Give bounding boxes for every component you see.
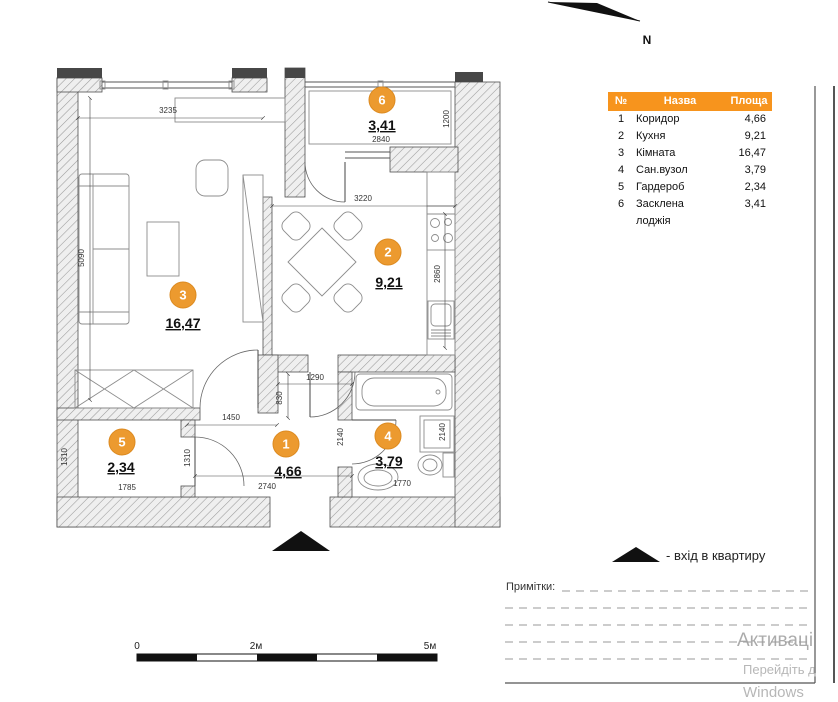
table-row: 3 Кімната 16,47 (608, 145, 772, 162)
scale-middle: 2м (250, 641, 263, 652)
dim-wardrobe-right: 1310 (183, 449, 192, 467)
wall-cap (232, 68, 267, 78)
room-area-6: 3,41 (368, 117, 395, 133)
room-badge-3: 3 16,47 (165, 282, 200, 331)
svg-text:5: 5 (118, 435, 125, 450)
scale-bar: 0 2м 5м (134, 641, 437, 661)
loggia-door-arc (305, 162, 345, 202)
room-area-5: 2,34 (107, 459, 134, 475)
bathtub (356, 374, 452, 410)
windows-group (100, 81, 455, 158)
table-row: 1 Коридор 4,66 (608, 111, 772, 128)
svg-text:3: 3 (179, 288, 186, 303)
bed (75, 370, 193, 408)
desk (175, 98, 285, 122)
toilet (418, 453, 454, 477)
dim-loggia-width: 2840 (372, 135, 390, 144)
dim-corridor-duct: 830 (275, 391, 284, 405)
svg-text:4: 4 (384, 429, 392, 444)
svg-text:6: 6 (378, 93, 385, 108)
dim-corridor-mid: 1450 (222, 413, 240, 422)
room-door-arc (200, 350, 258, 408)
dim-room3-width: 3235 (159, 106, 177, 115)
scale-start: 0 (134, 641, 140, 652)
table-row: 6 Засклена лоджія 3,41 (608, 196, 772, 213)
header-name: Назва (634, 92, 726, 111)
dim-wardrobe-bottom: 1785 (118, 483, 136, 492)
kitchen-sink (428, 301, 454, 339)
watermark-line1: Активаці (737, 630, 813, 652)
kitchen-counter (427, 172, 455, 355)
table-row: 4 Сан.вузол 3,79 (608, 162, 772, 179)
dining-table (288, 228, 356, 296)
dim-loggia-depth: 1200 (442, 110, 451, 128)
room-badge-1: 1 4,66 (273, 431, 302, 479)
room-area-3: 16,47 (165, 315, 200, 331)
room-badge-2: 2 9,21 (375, 239, 403, 290)
north-label: N (643, 33, 652, 47)
entrance-legend-icon (612, 547, 660, 562)
dim-corridor-top: 1290 (306, 373, 324, 382)
table-row: 2 Кухня 9,21 (608, 128, 772, 145)
coffee-table (147, 222, 179, 276)
dim-room3-height: 5090 (77, 249, 86, 267)
north-arrow: N (548, 2, 651, 47)
dining-chairs (279, 209, 365, 315)
svg-text:1: 1 (282, 437, 289, 452)
entrance-arrow (272, 531, 330, 551)
room-area-1: 4,66 (274, 463, 301, 479)
wall-cap (455, 72, 483, 82)
washing-machine (420, 416, 454, 452)
table-row: 5 Гардероб 2,34 (608, 179, 772, 196)
legend-table: № Назва Площа 1 Коридор 4,66 2 Кухня 9,2… (608, 92, 772, 213)
dim-corridor-right: 2140 (336, 428, 345, 446)
sofa (79, 174, 129, 324)
notes-label: Примітки: (506, 581, 555, 593)
floorplan-page: 3235 5090 3220 2860 2840 1200 1290 830 1… (0, 0, 838, 702)
scale-end: 5м (424, 641, 437, 652)
dim-bath-right: 2140 (438, 423, 447, 441)
dim-corridor-bottom: 2740 (258, 482, 276, 491)
header-num: № (608, 92, 634, 111)
stove (427, 206, 455, 250)
desk-chair (196, 160, 228, 196)
entrance-legend-label: - вхід в квартиру (666, 548, 766, 563)
room-area-4: 3,79 (375, 453, 402, 469)
dim-kitchen-width: 3220 (354, 194, 372, 203)
watermark-line2: Перейдіть д (743, 662, 816, 677)
room-badge-4: 4 3,79 (375, 423, 403, 469)
header-area: Площа (726, 92, 772, 111)
entrance-legend: - вхід в квартиру (612, 547, 766, 563)
svg-text:2: 2 (384, 245, 391, 260)
wall-cap (57, 68, 102, 78)
dim-kitchen-height: 2860 (433, 265, 442, 283)
dim-bath-bottom: 1770 (393, 479, 411, 488)
room-area-2: 9,21 (375, 274, 402, 290)
room-badge-5: 5 2,34 (107, 429, 135, 475)
wardrobe-cabinet (243, 175, 263, 322)
dim-wardrobe-left: 1310 (60, 448, 69, 466)
wall-cap (285, 68, 305, 78)
wardrobe-door-arc (195, 437, 244, 486)
watermark-line3: Windows (743, 684, 804, 701)
room-badge-6: 6 3,41 (368, 87, 395, 133)
legend-table-header: № Назва Площа (608, 92, 772, 111)
